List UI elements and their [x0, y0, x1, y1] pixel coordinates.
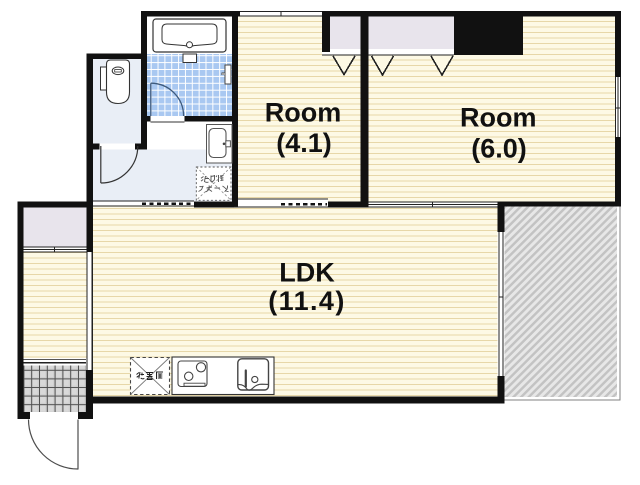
svg-text:Room: Room — [265, 98, 342, 128]
svg-text:(11.4): (11.4) — [268, 286, 345, 316]
svg-text:(4.1): (4.1) — [276, 128, 332, 158]
svg-text:LDK: LDK — [279, 258, 335, 288]
svg-text:Room: Room — [460, 102, 537, 132]
svg-text:(6.0): (6.0) — [471, 133, 527, 163]
